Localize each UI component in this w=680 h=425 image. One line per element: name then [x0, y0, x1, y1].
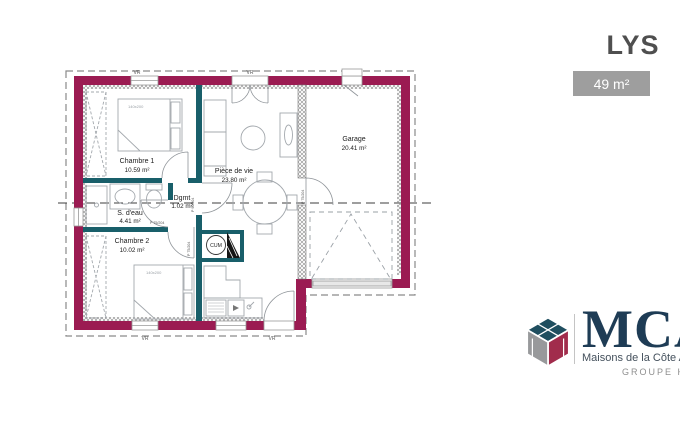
- attic-hatch-icon: [227, 232, 240, 258]
- small-annotations: VR VR VR VR 140x200 140x200 P 90/204 P 7…: [128, 70, 305, 342]
- vr-label-2: VR: [247, 70, 254, 76]
- furniture-living: [204, 100, 297, 234]
- room-label-chambre1: Chambre 1: [120, 158, 155, 165]
- logo-group: GROUPE Hexaōm: [622, 367, 680, 377]
- room-label-sdeau: S. d'eau: [117, 210, 143, 217]
- plan-title: LYS: [586, 30, 680, 61]
- room-area-sdeau: 4.41 m²: [119, 218, 140, 225]
- door-label-sdeau: P 75/204: [150, 221, 164, 225]
- garage-door: [313, 281, 391, 286]
- furniture-kitchen: [204, 266, 262, 318]
- room-area-chambre1: 10.59 m²: [125, 167, 150, 174]
- room-label-living: Pièce de vie: [215, 168, 253, 175]
- garage-door-swing: [310, 212, 392, 279]
- door-label-garage: P 75/204: [301, 190, 305, 204]
- mca-cube-icon: [522, 314, 574, 370]
- room-label-garage: Garage: [342, 136, 365, 143]
- bed1-size-label: 140x200: [128, 104, 144, 109]
- mca-logo: MCA Maisons de la Côte Atlantique GROUPE…: [516, 306, 680, 386]
- vr-label-4: VR: [269, 336, 276, 342]
- door-label-chambre2: P 75/204: [187, 242, 191, 256]
- logo-subtitle: Maisons de la Côte Atlantique: [582, 352, 680, 364]
- room-area-chambre2: 10.02 m²: [120, 247, 145, 254]
- room-label-chambre2: Chambre 2: [115, 238, 150, 245]
- door-label-living: P 90/204: [191, 198, 195, 212]
- cum-label: CUM: [210, 243, 222, 249]
- room-area-garage: 20.41 m²: [342, 145, 367, 152]
- vr-label-1: VR: [134, 70, 141, 76]
- area-badge: 49 m²: [573, 71, 650, 96]
- logo-name: MCA: [582, 298, 680, 360]
- room-area-dgmt: 1.02 m²: [171, 203, 192, 210]
- room-area-living: 23.80 m²: [222, 177, 247, 184]
- room-label-dgmt: Dgmt: [174, 195, 191, 202]
- garage-party-wall: [298, 85, 306, 279]
- page: CUM Chambre 1 10.59 m² S. d'eau 4.41 m² …: [0, 0, 680, 425]
- vr-label-3: VR: [142, 336, 149, 342]
- water-heater: CUM: [207, 232, 241, 258]
- logo-divider: [574, 314, 575, 364]
- bed2-size-label: 140x200: [146, 270, 162, 275]
